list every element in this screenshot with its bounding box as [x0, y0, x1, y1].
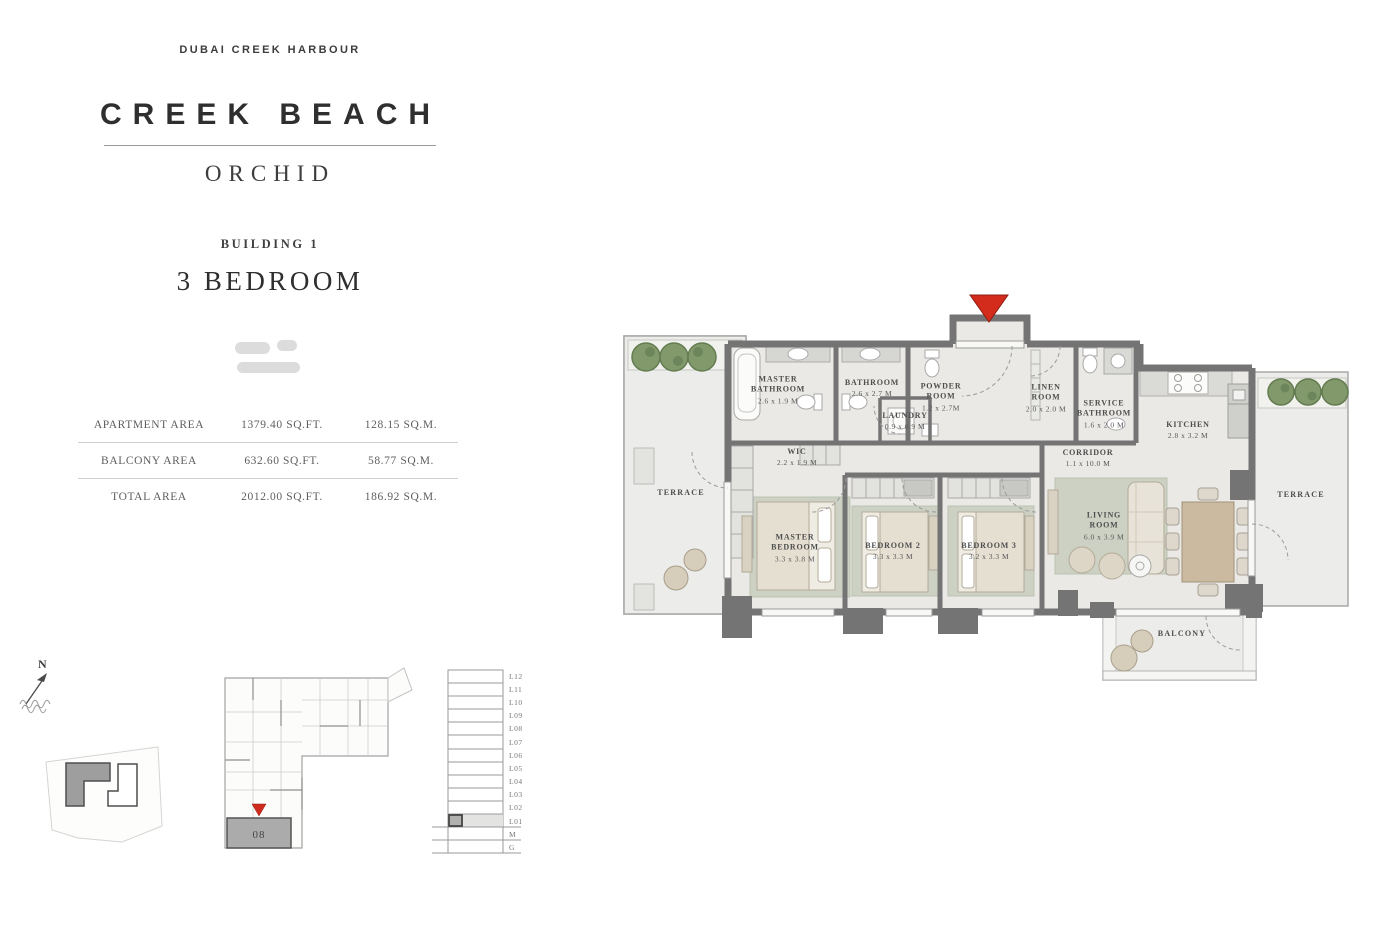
title-divider: [104, 145, 436, 146]
dining-table: [1182, 502, 1234, 582]
room-label-linen-room: LINEN ROOM 2.0 x 2.0 M: [1024, 383, 1068, 414]
sink: [788, 348, 808, 360]
svg-text:N: N: [38, 657, 47, 671]
svg-text:L08: L08: [509, 724, 523, 733]
sink: [860, 348, 880, 360]
north-arrow-icon: N: [20, 657, 50, 713]
room-label-master-bedroom: MASTER BEDROOM 3.3 x 3.8 M: [764, 533, 826, 564]
tv-unit: [1048, 490, 1058, 554]
toilet: [1083, 348, 1097, 373]
coffee-table: [1129, 555, 1151, 577]
planter: [634, 584, 654, 610]
svg-text:L11: L11: [509, 685, 522, 694]
svg-text:L01: L01: [509, 817, 523, 826]
svg-text:G: G: [509, 843, 515, 852]
area-sqm: 128.15 SQ.M.: [344, 419, 458, 431]
room-label-corridor: CORRIDOR 1.1 x 10.0 M: [1038, 448, 1138, 468]
redacted-blob: [277, 340, 297, 351]
svg-text:L04: L04: [509, 777, 523, 786]
svg-text:L07: L07: [509, 738, 523, 747]
room-label-master-bathroom: MASTER BATHROOM 2.6 x 1.9 M: [745, 375, 811, 406]
room-label-kitchen: KITCHEN 2.8 x 3.2 M: [1148, 420, 1228, 440]
tree-icon: [632, 343, 716, 371]
room-label-bedroom-3: BEDROOM 3 3.2 x 3.3 M: [949, 541, 1029, 561]
room-label-powder-room: POWDER ROOM 1.2 x 2.7M: [917, 382, 965, 413]
outdoor-chair: [664, 566, 688, 590]
level-unit-marker: [449, 815, 462, 826]
dresser: [742, 516, 752, 572]
balcony-area: [1103, 612, 1256, 680]
svg-text:L05: L05: [509, 764, 523, 773]
armchair: [1099, 553, 1125, 579]
room-label-living-room: LIVING ROOM 6.0 x 3.9 M: [1080, 511, 1128, 542]
svg-text:L03: L03: [509, 790, 523, 799]
shower: [1104, 348, 1132, 374]
project-title: CREEK BEACH: [100, 98, 440, 132]
room-label-laundry: LAUNDRY 0.9 x 0.9 M: [874, 411, 936, 431]
svg-text:L06: L06: [509, 751, 523, 760]
room-label-balcony: BALCONY: [1142, 629, 1222, 639]
fridge: [1228, 384, 1250, 438]
key-plan-unit-number: 08: [253, 829, 266, 841]
kitchen-counter: [1140, 370, 1232, 396]
svg-text:L12: L12: [509, 672, 523, 681]
outdoor-chair: [684, 549, 706, 571]
table-row: TOTAL AREA 2012.00 SQ.FT. 186.92 SQ.M.: [78, 479, 458, 514]
stove: [1168, 372, 1208, 394]
armchair: [1069, 547, 1095, 573]
room-label-terrace-right: TERRACE: [1261, 490, 1341, 500]
wardrobe: [948, 478, 1030, 498]
floorplan-page: N: [0, 0, 1400, 934]
room-label-terrace-left: TERRACE: [641, 488, 721, 498]
room-label-service-bathroom: SERVICE BATHROOM 1.6 x 2.0 M: [1071, 399, 1137, 430]
toilet: [925, 350, 939, 377]
planter: [634, 448, 654, 484]
area-label: TOTAL AREA: [78, 491, 220, 503]
wardrobe: [852, 478, 934, 498]
svg-text:M: M: [509, 830, 516, 839]
area-sqm: 58.77 SQ.M.: [344, 455, 458, 467]
room-label-wic: WIC 2.2 x 1.9 M: [752, 447, 842, 467]
table-row: APARTMENT AREA 1379.40 SQ.FT. 128.15 SQ.…: [78, 407, 458, 442]
key-plan: 08: [225, 668, 412, 848]
area-sqft: 632.60 SQ.FT.: [220, 455, 344, 467]
room-label-bedroom-2: BEDROOM 2 3.3 x 3.3 M: [853, 541, 933, 561]
area-sqft: 2012.00 SQ.FT.: [220, 491, 344, 503]
area-sqft: 1379.40 SQ.FT.: [220, 419, 344, 431]
svg-text:L02: L02: [509, 803, 523, 812]
redacted-blob: [237, 362, 300, 373]
redacted-blob: [235, 342, 270, 354]
unit-type-label: 3 BEDROOM: [100, 266, 440, 297]
table-row: BALCONY AREA 632.60 SQ.FT. 58.77 SQ.M.: [78, 443, 458, 478]
svg-text:L10: L10: [509, 698, 523, 707]
outdoor-chair: [1111, 645, 1137, 671]
site-plan: [46, 747, 162, 842]
brand-name: DUBAI CREEK HARBOUR: [100, 44, 440, 56]
header-block: DUBAI CREEK HARBOUR CREEK BEACH ORCHID B…: [100, 44, 440, 297]
building-label: BUILDING 1: [100, 237, 440, 252]
area-sqm: 186.92 SQ.M.: [344, 491, 458, 503]
tree-icon: [1268, 379, 1348, 405]
level-indicator: L12 L11 L10 L09 L08 L07 L06 L05 L04 L03 …: [432, 670, 523, 853]
svg-text:L09: L09: [509, 711, 523, 720]
collection-title: ORCHID: [100, 161, 440, 187]
room-label-bathroom: BATHROOM 2.6 x 2.7 M: [832, 378, 912, 398]
area-label: BALCONY AREA: [78, 455, 220, 467]
area-label: APARTMENT AREA: [78, 419, 220, 431]
area-table: APARTMENT AREA 1379.40 SQ.FT. 128.15 SQ.…: [78, 407, 458, 514]
